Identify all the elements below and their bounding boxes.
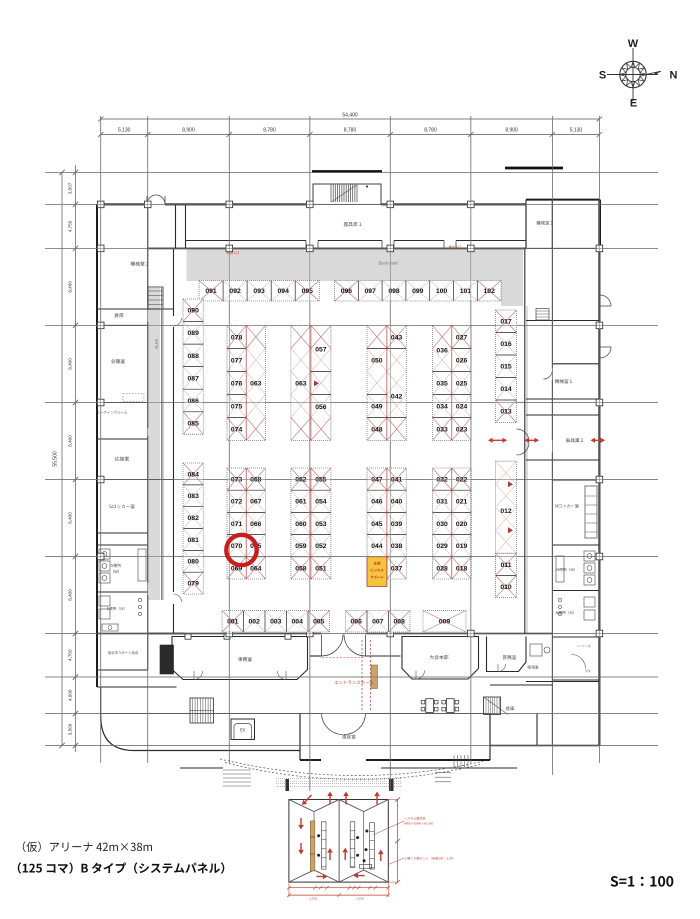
svg-text:022: 022: [456, 477, 468, 484]
svg-text:8,900: 8,900: [182, 128, 195, 134]
svg-text:091: 091: [205, 288, 217, 295]
svg-text:032: 032: [436, 477, 448, 484]
svg-text:071: 071: [231, 521, 243, 528]
svg-text:078: 078: [231, 334, 243, 341]
svg-text:W: W: [628, 38, 639, 50]
svg-text:036: 036: [436, 347, 448, 354]
svg-text:017: 017: [500, 319, 512, 326]
svg-text:057: 057: [315, 346, 327, 353]
svg-text:015: 015: [500, 364, 512, 371]
svg-text:020: 020: [456, 521, 468, 528]
svg-text:063: 063: [295, 380, 307, 387]
svg-text:010: 010: [500, 584, 512, 591]
svg-text:095: 095: [302, 288, 314, 295]
svg-text:E: E: [630, 98, 637, 110]
svg-text:051: 051: [315, 565, 327, 572]
svg-text:8,400: 8,400: [68, 358, 73, 370]
svg-text:8,780: 8,780: [344, 128, 357, 134]
svg-text:063: 063: [250, 380, 262, 387]
svg-text:019: 019: [456, 543, 468, 550]
svg-text:043: 043: [391, 334, 403, 341]
svg-text:074: 074: [231, 426, 243, 433]
svg-text:076: 076: [231, 380, 243, 387]
svg-text:101: 101: [460, 288, 472, 295]
svg-text:029: 029: [436, 543, 448, 550]
svg-text:052: 052: [315, 543, 327, 550]
svg-text:092: 092: [229, 288, 241, 295]
svg-text:040: 040: [391, 499, 403, 506]
svg-text:027: 027: [456, 334, 468, 341]
svg-text:011: 011: [501, 562, 512, 569]
svg-text:082: 082: [188, 515, 200, 522]
svg-text:045: 045: [371, 521, 383, 528]
svg-text:054: 054: [315, 499, 327, 506]
svg-text:008: 008: [394, 619, 406, 626]
svg-text:034: 034: [436, 403, 448, 410]
svg-text:062: 062: [295, 477, 307, 484]
svg-text:053: 053: [315, 521, 327, 528]
svg-text:55,500: 55,500: [53, 451, 59, 467]
svg-text:023: 023: [456, 426, 468, 433]
svg-text:058: 058: [295, 565, 307, 572]
svg-text:8,400: 8,400: [68, 589, 73, 601]
svg-text:3,507: 3,507: [68, 182, 73, 194]
svg-text:014: 014: [500, 386, 512, 393]
svg-text:083: 083: [188, 493, 200, 500]
svg-text:039: 039: [391, 521, 403, 528]
svg-text:8,780: 8,780: [263, 128, 276, 134]
svg-text:8,780: 8,780: [424, 128, 437, 134]
svg-text:8,900: 8,900: [505, 128, 518, 134]
svg-text:024: 024: [456, 403, 468, 410]
svg-text:093: 093: [253, 288, 265, 295]
svg-text:099: 099: [412, 288, 424, 295]
svg-text:100: 100: [436, 288, 448, 295]
svg-text:080: 080: [188, 559, 200, 566]
svg-text:54,400: 54,400: [342, 113, 358, 119]
svg-text:081: 081: [188, 537, 200, 544]
svg-text:044: 044: [371, 543, 383, 550]
svg-text:041: 041: [391, 477, 403, 484]
svg-text:3,500: 3,500: [68, 723, 73, 735]
svg-text:096: 096: [341, 288, 353, 295]
svg-text:073: 073: [231, 477, 243, 484]
svg-text:084: 084: [188, 471, 200, 478]
svg-text:026: 026: [456, 357, 468, 364]
svg-text:031: 031: [436, 499, 448, 506]
svg-text:016: 016: [500, 341, 512, 348]
svg-text:056: 056: [315, 404, 327, 411]
svg-text:001: 001: [227, 619, 239, 626]
svg-text:061: 061: [295, 499, 307, 506]
svg-text:009: 009: [439, 619, 451, 626]
svg-text:025: 025: [456, 380, 468, 387]
svg-text:049: 049: [371, 403, 383, 410]
svg-text:070: 070: [231, 543, 243, 550]
svg-text:4,750: 4,750: [68, 220, 73, 232]
svg-text:N: N: [670, 69, 678, 81]
svg-text:042: 042: [391, 393, 403, 400]
svg-text:007: 007: [372, 619, 384, 626]
svg-text:8,400: 8,400: [68, 435, 73, 447]
svg-text:033: 033: [436, 426, 448, 433]
svg-text:013: 013: [500, 409, 512, 416]
svg-text:064: 064: [250, 565, 262, 572]
svg-text:012: 012: [500, 508, 512, 515]
svg-text:088: 088: [188, 353, 200, 360]
svg-text:060: 060: [295, 521, 307, 528]
svg-text:066: 066: [250, 521, 262, 528]
svg-text:5,130: 5,130: [570, 128, 583, 134]
svg-text:8,400: 8,400: [68, 512, 73, 524]
svg-text:028: 028: [436, 565, 448, 572]
svg-text:090: 090: [188, 308, 200, 315]
svg-text:4,000: 4,000: [68, 689, 73, 701]
svg-text:004: 004: [292, 619, 304, 626]
svg-text:047: 047: [371, 477, 383, 484]
svg-text:085: 085: [188, 420, 200, 427]
svg-text:087: 087: [188, 375, 200, 382]
svg-text:8,400: 8,400: [68, 281, 73, 293]
svg-text:S: S: [599, 69, 606, 81]
svg-text:048: 048: [371, 426, 383, 433]
svg-text:102: 102: [484, 288, 496, 295]
svg-text:006: 006: [351, 619, 363, 626]
svg-text:079: 079: [188, 581, 200, 588]
svg-text:086: 086: [188, 398, 200, 405]
svg-text:097: 097: [365, 288, 377, 295]
svg-text:037: 037: [391, 565, 403, 572]
svg-text:035: 035: [436, 380, 448, 387]
svg-text:067: 067: [250, 499, 262, 506]
svg-text:077: 077: [231, 357, 243, 364]
svg-text:094: 094: [278, 288, 290, 295]
svg-text:089: 089: [188, 330, 200, 337]
svg-text:059: 059: [295, 543, 307, 550]
svg-text:003: 003: [270, 619, 282, 626]
svg-text:021: 021: [456, 499, 468, 506]
svg-text:5,130: 5,130: [118, 128, 131, 134]
svg-text:075: 075: [231, 403, 243, 410]
svg-text:068: 068: [250, 477, 262, 484]
svg-text:030: 030: [436, 521, 448, 528]
svg-text:050: 050: [371, 357, 383, 364]
svg-text:072: 072: [231, 499, 243, 506]
svg-text:Back yard: Back yard: [378, 261, 398, 266]
svg-text:018: 018: [456, 565, 468, 572]
svg-text:046: 046: [371, 499, 383, 506]
svg-text:002: 002: [249, 619, 261, 626]
svg-text:038: 038: [391, 543, 403, 550]
svg-text:4,750: 4,750: [68, 649, 73, 661]
svg-text:005: 005: [313, 619, 325, 626]
svg-text:055: 055: [315, 477, 327, 484]
